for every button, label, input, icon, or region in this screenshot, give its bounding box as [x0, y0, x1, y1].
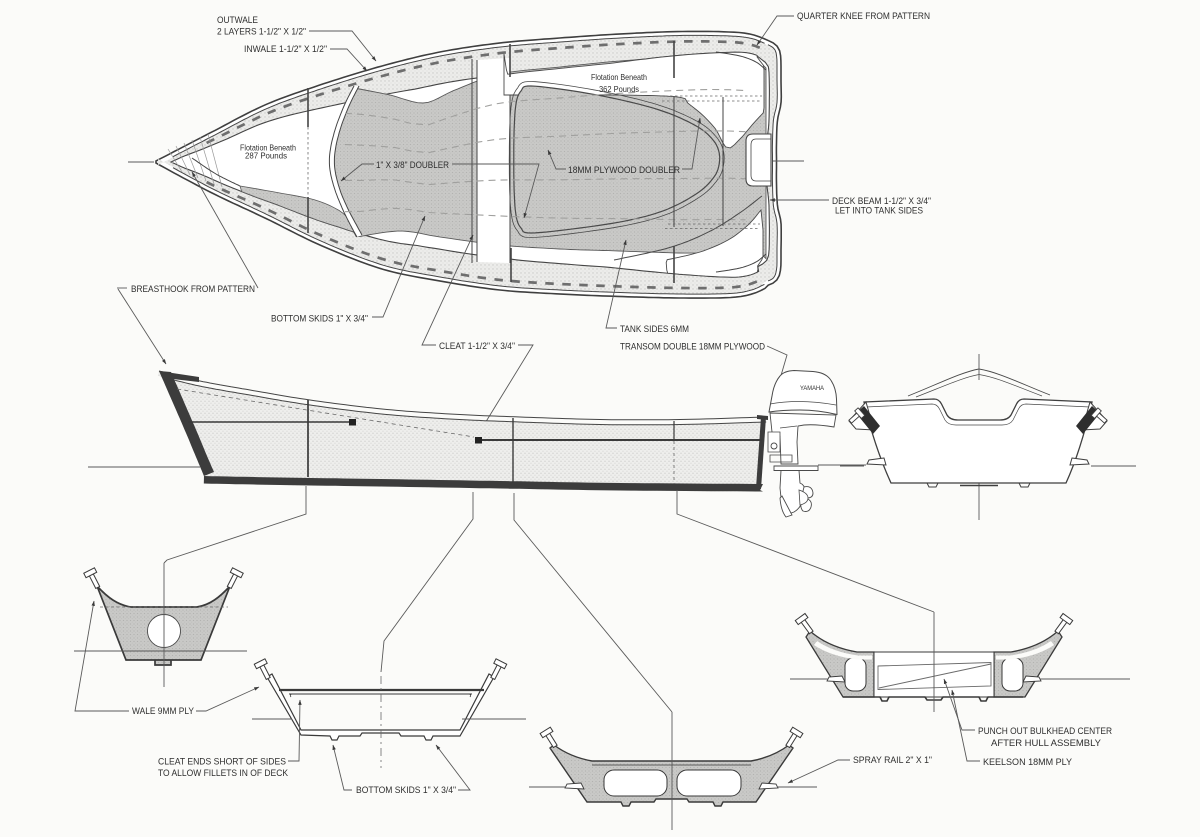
svg-text:BREASTHOOK FROM PATTERN: BREASTHOOK FROM PATTERN [131, 284, 255, 294]
svg-text:BOTTOM SKIDS 1" X 3/4": BOTTOM SKIDS 1" X 3/4" [271, 314, 368, 324]
svg-text:LET INTO TANK SIDES: LET INTO TANK SIDES [835, 206, 923, 216]
svg-text:TO ALLOW FILLETS IN OF DECK: TO ALLOW FILLETS IN OF DECK [158, 768, 289, 778]
svg-text:362 Pounds: 362 Pounds [599, 84, 639, 94]
svg-text:INWALE 1-1/2" X 1/2": INWALE 1-1/2" X 1/2" [244, 44, 327, 54]
svg-text:Flotation Beneath: Flotation Beneath [591, 72, 647, 82]
svg-text:SPRAY RAIL 2" X 1": SPRAY RAIL 2" X 1" [853, 755, 932, 765]
svg-text:WALE 9MM PLY: WALE 9MM PLY [132, 706, 194, 716]
svg-text:CLEAT 1-1/2" X 3/4": CLEAT 1-1/2" X 3/4" [439, 341, 515, 351]
svg-text:QUARTER KNEE FROM PATTERN: QUARTER KNEE FROM PATTERN [797, 11, 930, 21]
svg-text:1" X 3/8" DOUBLER: 1" X 3/8" DOUBLER [376, 160, 449, 170]
svg-text:18MM PLYWOOD DOUBLER: 18MM PLYWOOD DOUBLER [568, 165, 680, 175]
svg-text:AFTER HULL ASSEMBLY: AFTER HULL ASSEMBLY [991, 738, 1101, 748]
svg-text:KEELSON 18MM PLY: KEELSON 18MM PLY [983, 757, 1072, 767]
svg-text:PUNCH OUT BULKHEAD CENTER: PUNCH OUT BULKHEAD CENTER [978, 726, 1112, 736]
svg-text:TRANSOM DOUBLE 18MM PLYWOOD: TRANSOM DOUBLE 18MM PLYWOOD [620, 342, 765, 352]
svg-text:TANK SIDES 6MM: TANK SIDES 6MM [620, 324, 689, 334]
svg-text:BOTTOM SKIDS 1" X 3/4": BOTTOM SKIDS 1" X 3/4" [356, 785, 456, 795]
svg-text:287 Pounds: 287 Pounds [245, 151, 287, 161]
svg-text:2 LAYERS 1-1/2" X 1/2": 2 LAYERS 1-1/2" X 1/2" [217, 27, 306, 37]
svg-text:YAMAHA: YAMAHA [800, 386, 824, 392]
svg-text:CLEAT ENDS SHORT OF SIDES: CLEAT ENDS SHORT OF SIDES [158, 757, 286, 767]
svg-text:OUTWALE: OUTWALE [217, 15, 258, 25]
svg-text:DECK BEAM 1-1/2" X 3/4": DECK BEAM 1-1/2" X 3/4" [832, 196, 931, 206]
